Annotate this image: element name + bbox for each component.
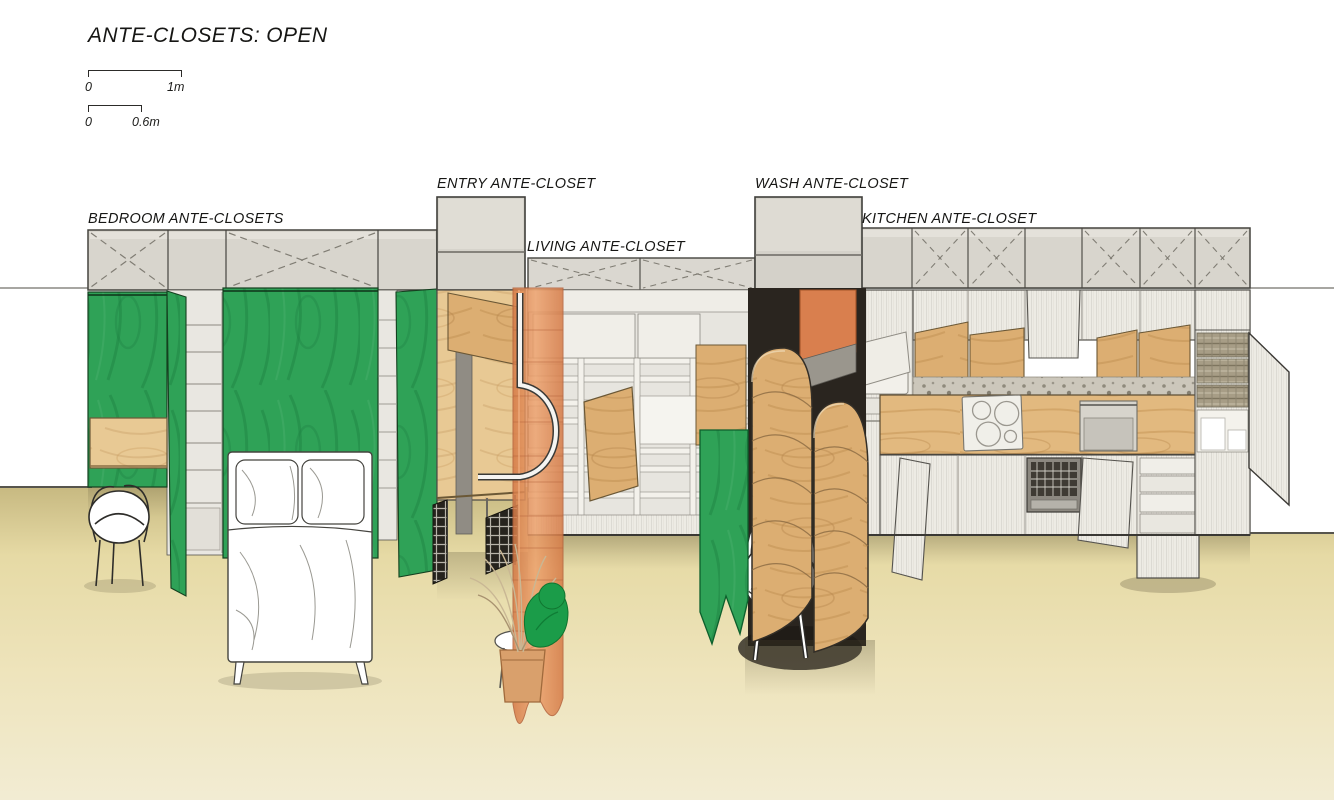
entry-tower <box>437 197 525 290</box>
oven <box>1027 458 1081 512</box>
terrazzo-backsplash <box>913 377 1195 395</box>
sink <box>1080 401 1137 451</box>
pantry-door-open <box>1249 333 1289 505</box>
label-bedroom-ante-closets: BEDROOM ANTE-CLOSETS <box>88 211 284 227</box>
pulled-out-drawer <box>1137 535 1199 578</box>
elevation-drawing <box>0 0 1334 800</box>
label-living-ante-closet: LIVING ANTE-CLOSET <box>527 239 685 255</box>
plant-pot <box>500 650 545 702</box>
kitchen-upper-cabinets <box>858 228 1250 288</box>
label-kitchen-ante-closet: KITCHEN ANTE-CLOSET <box>862 211 1036 227</box>
bedroom-shelf-column-right <box>378 290 397 540</box>
elevation-drawing-page: ANTE-CLOSETS: OPEN 0 1m 0 0.6m BEDROOM A… <box>0 0 1334 800</box>
drawing-title: ANTE-CLOSETS: OPEN <box>88 24 327 48</box>
lattice-grille-left <box>433 500 447 584</box>
label-entry-ante-closet: ENTRY ANTE-CLOSET <box>437 176 595 192</box>
wash-floor-shadow <box>745 640 875 695</box>
bedroom-upper-cabinets <box>88 230 437 290</box>
kitchen-ante-closet <box>858 228 1289 580</box>
scale-06m-start: 0 <box>85 115 92 129</box>
fold-down-desk <box>90 418 167 468</box>
kitchen-hanging-white-door <box>1027 290 1080 358</box>
drawer-stack <box>1137 458 1199 578</box>
living-plywood-door <box>584 387 638 501</box>
living-upper-cabinets <box>528 258 755 290</box>
label-wash-ante-closet: WASH ANTE-CLOSET <box>755 176 908 192</box>
bed <box>228 452 372 684</box>
pantry-cabinet <box>1195 290 1250 535</box>
bedroom-green-door-4 <box>396 289 437 577</box>
wash-tower <box>755 197 862 290</box>
scale-1m-start: 0 <box>85 80 92 94</box>
scale-1m-end: 1m <box>167 80 184 94</box>
scale-06m-end: 0.6m <box>132 115 160 129</box>
tambour-door-2 <box>814 402 868 652</box>
wash-ante-closet <box>738 197 875 695</box>
tambour-door-1 <box>752 348 812 642</box>
cooktop <box>962 395 1023 451</box>
